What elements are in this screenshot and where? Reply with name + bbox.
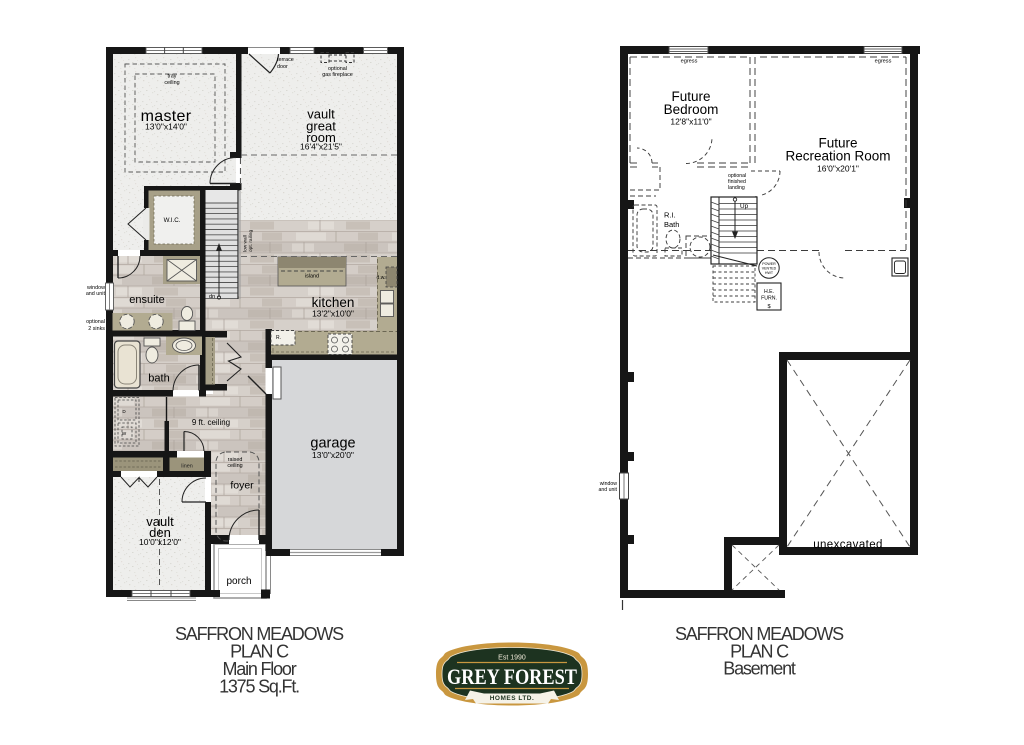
svg-text:door: door <box>277 64 288 70</box>
svg-text:FURN.: FURN. <box>761 296 777 302</box>
svg-text:16'4"x21'5": 16'4"x21'5" <box>300 142 342 152</box>
svg-text:bath: bath <box>148 373 169 385</box>
svg-text:W.I.C.: W.I.C. <box>164 217 181 224</box>
svg-text:H.E.: H.E. <box>764 289 774 295</box>
svg-text:tray: tray <box>168 74 177 80</box>
svg-text:foyer: foyer <box>230 480 254 492</box>
svg-text:Basement: Basement <box>723 659 796 679</box>
svg-text:island: island <box>305 274 319 280</box>
svg-text:HWT: HWT <box>765 271 774 275</box>
svg-text:ceiling: ceiling <box>164 80 179 86</box>
svg-text:egress: egress <box>875 59 892 65</box>
svg-text:linen: linen <box>181 464 192 470</box>
svg-text:12'8"x11'0": 12'8"x11'0" <box>670 117 711 127</box>
svg-text:GREY FOREST: GREY FOREST <box>447 664 577 689</box>
svg-text:dn: dn <box>209 294 215 300</box>
svg-text:R.I.: R.I. <box>664 211 676 220</box>
svg-text:Est 1990: Est 1990 <box>498 655 526 662</box>
svg-text:13'0"x14'0": 13'0"x14'0" <box>145 122 187 132</box>
svg-text:VENTED: VENTED <box>762 267 777 271</box>
svg-text:13'0"x20'0": 13'0"x20'0" <box>312 450 354 460</box>
svg-text:HOMES LTD.: HOMES LTD. <box>490 695 535 702</box>
svg-text:ceiling: ceiling <box>227 463 242 469</box>
svg-text:gas fireplace: gas fireplace <box>322 72 353 78</box>
svg-text:1375 Sq.Ft.: 1375 Sq.Ft. <box>219 677 299 697</box>
svg-text:2 sinks: 2 sinks <box>88 326 105 332</box>
svg-text:Bedroom: Bedroom <box>664 102 719 117</box>
svg-text:POWER: POWER <box>762 262 776 266</box>
svg-text:Bath: Bath <box>664 220 679 229</box>
svg-text:Up: Up <box>740 203 749 210</box>
svg-text:R.: R. <box>276 335 281 341</box>
svg-text:and unit: and unit <box>86 291 106 297</box>
svg-text:unexcavated: unexcavated <box>813 539 883 551</box>
svg-text:landing: landing <box>728 185 745 191</box>
svg-text:9 ft. ceiling: 9 ft. ceiling <box>192 418 230 427</box>
svg-text:13'2"x10'0": 13'2"x10'0" <box>312 309 354 319</box>
svg-text:W: W <box>122 431 127 436</box>
svg-text:low wall: low wall <box>243 235 249 252</box>
svg-text:10'0"x12'0": 10'0"x12'0" <box>139 537 181 547</box>
svg-text:terrace: terrace <box>277 57 294 63</box>
svg-text:optional: optional <box>86 319 105 325</box>
svg-text:porch: porch <box>226 576 251 587</box>
svg-text:and unit: and unit <box>599 487 618 493</box>
svg-text:ensuite: ensuite <box>129 294 164 306</box>
svg-text:opt. railing: opt. railing <box>248 230 254 252</box>
svg-text:egress: egress <box>681 59 698 65</box>
svg-text:16'0"x20'1": 16'0"x20'1" <box>817 164 859 174</box>
svg-text:Recreation Room: Recreation Room <box>785 149 890 164</box>
